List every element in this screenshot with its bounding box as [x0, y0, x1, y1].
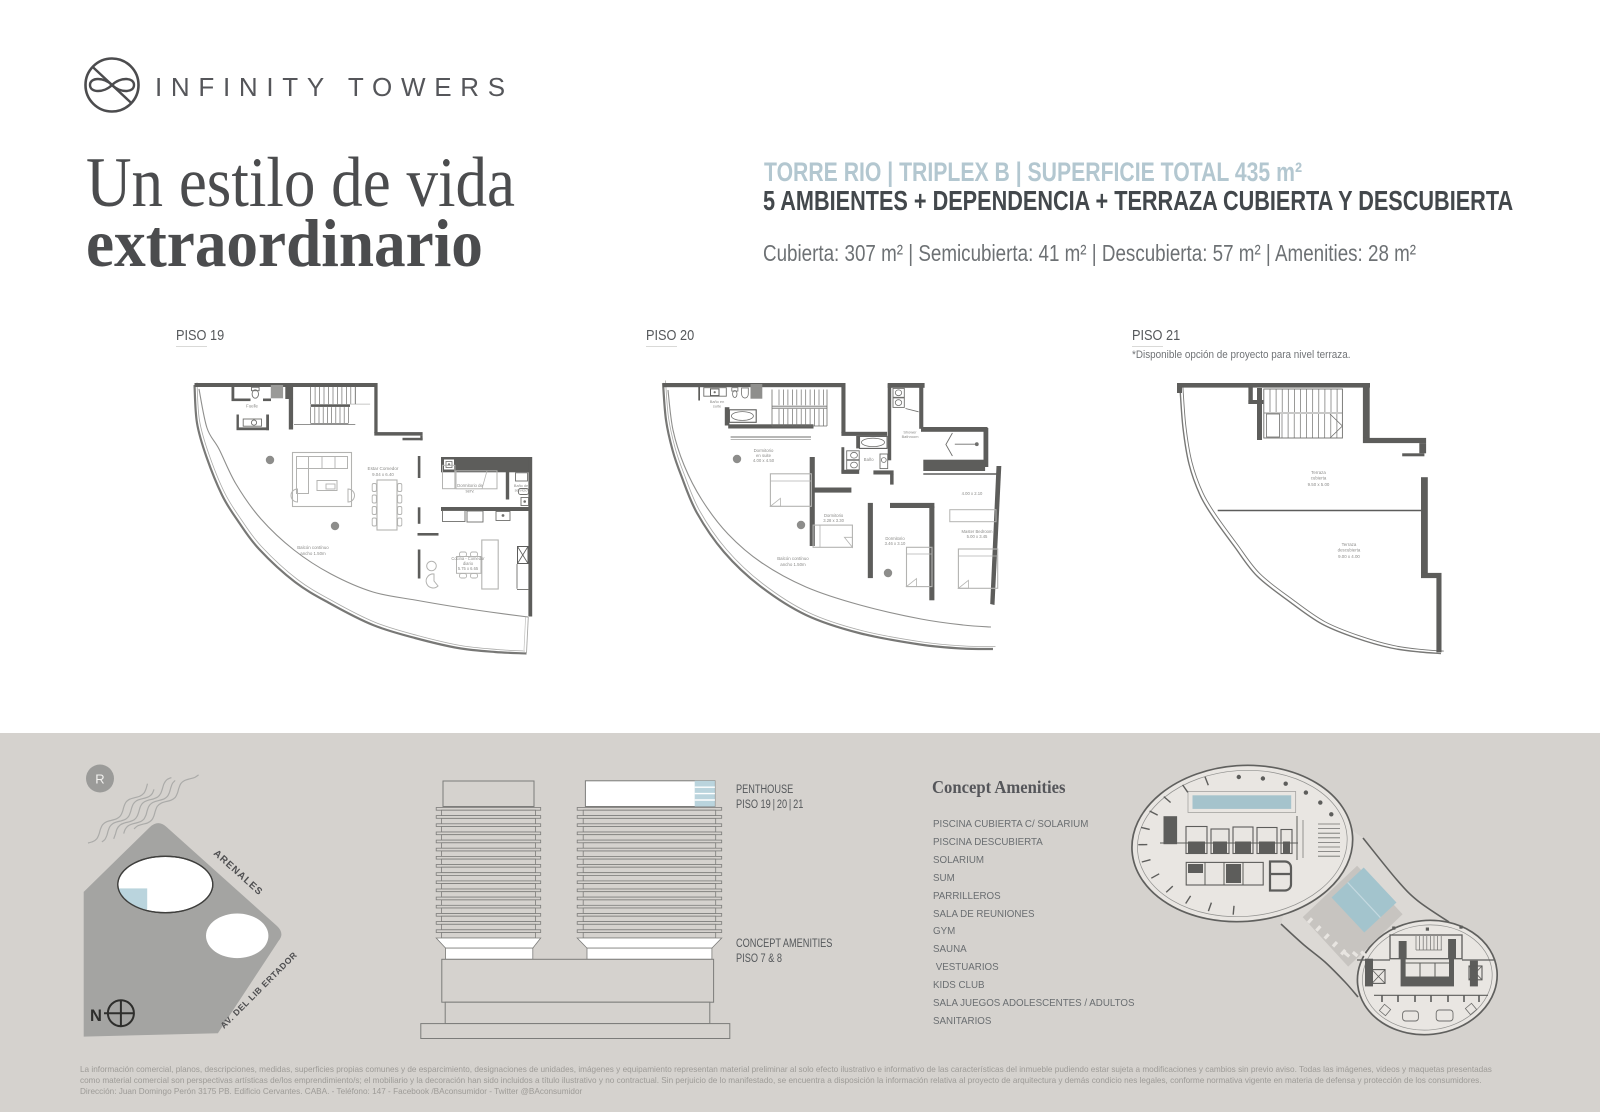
svg-text:ancho 1.50m: ancho 1.50m	[780, 562, 806, 567]
svg-text:Estar Comedor: Estar Comedor	[368, 466, 399, 471]
svg-text:Terraza: Terraza	[1311, 470, 1326, 475]
svg-text:4.00 x 2.10: 4.00 x 2.10	[962, 491, 983, 496]
svg-text:4.00 x 4.50: 4.00 x 4.50	[753, 458, 775, 463]
svg-text:5.00 x 3.45: 5.00 x 3.45	[967, 534, 988, 539]
svg-text:serv.: serv.	[466, 489, 475, 494]
svg-text:ancho 1.50m: ancho 1.50m	[300, 551, 326, 556]
svg-text:Baño de: Baño de	[514, 484, 528, 488]
svg-text:Terraza: Terraza	[1342, 542, 1357, 547]
svg-text:Balcón contínuo: Balcón contínuo	[777, 556, 809, 561]
svg-text:3.46 x 3.10: 3.46 x 3.10	[885, 541, 906, 546]
svg-text:Baño: Baño	[864, 457, 874, 462]
svg-text:9.04 x 6.40: 9.04 x 6.40	[372, 472, 394, 477]
svg-text:Balcón contínuo: Balcón contínuo	[297, 545, 329, 550]
svg-text:servicio: servicio	[515, 489, 528, 493]
svg-text:Dormitorio de: Dormitorio de	[457, 483, 483, 488]
svg-text:cubierta: cubierta	[1311, 476, 1327, 481]
svg-text:9.00 x 4.00: 9.00 x 4.00	[1338, 554, 1360, 559]
svg-text:Bathroom: Bathroom	[902, 434, 919, 439]
svg-text:5.75 x 6.65: 5.75 x 6.65	[458, 566, 479, 571]
svg-text:3.28 x 3.30: 3.28 x 3.30	[823, 518, 844, 523]
svg-text:N: N	[90, 1007, 102, 1025]
svg-text:descubierta: descubierta	[1338, 548, 1361, 553]
svg-text:suite: suite	[713, 404, 721, 409]
svg-text:9.50 x 5.00: 9.50 x 5.00	[1308, 482, 1330, 487]
svg-text:R: R	[95, 772, 104, 787]
svg-text:Fuelle: Fuelle	[246, 404, 259, 409]
